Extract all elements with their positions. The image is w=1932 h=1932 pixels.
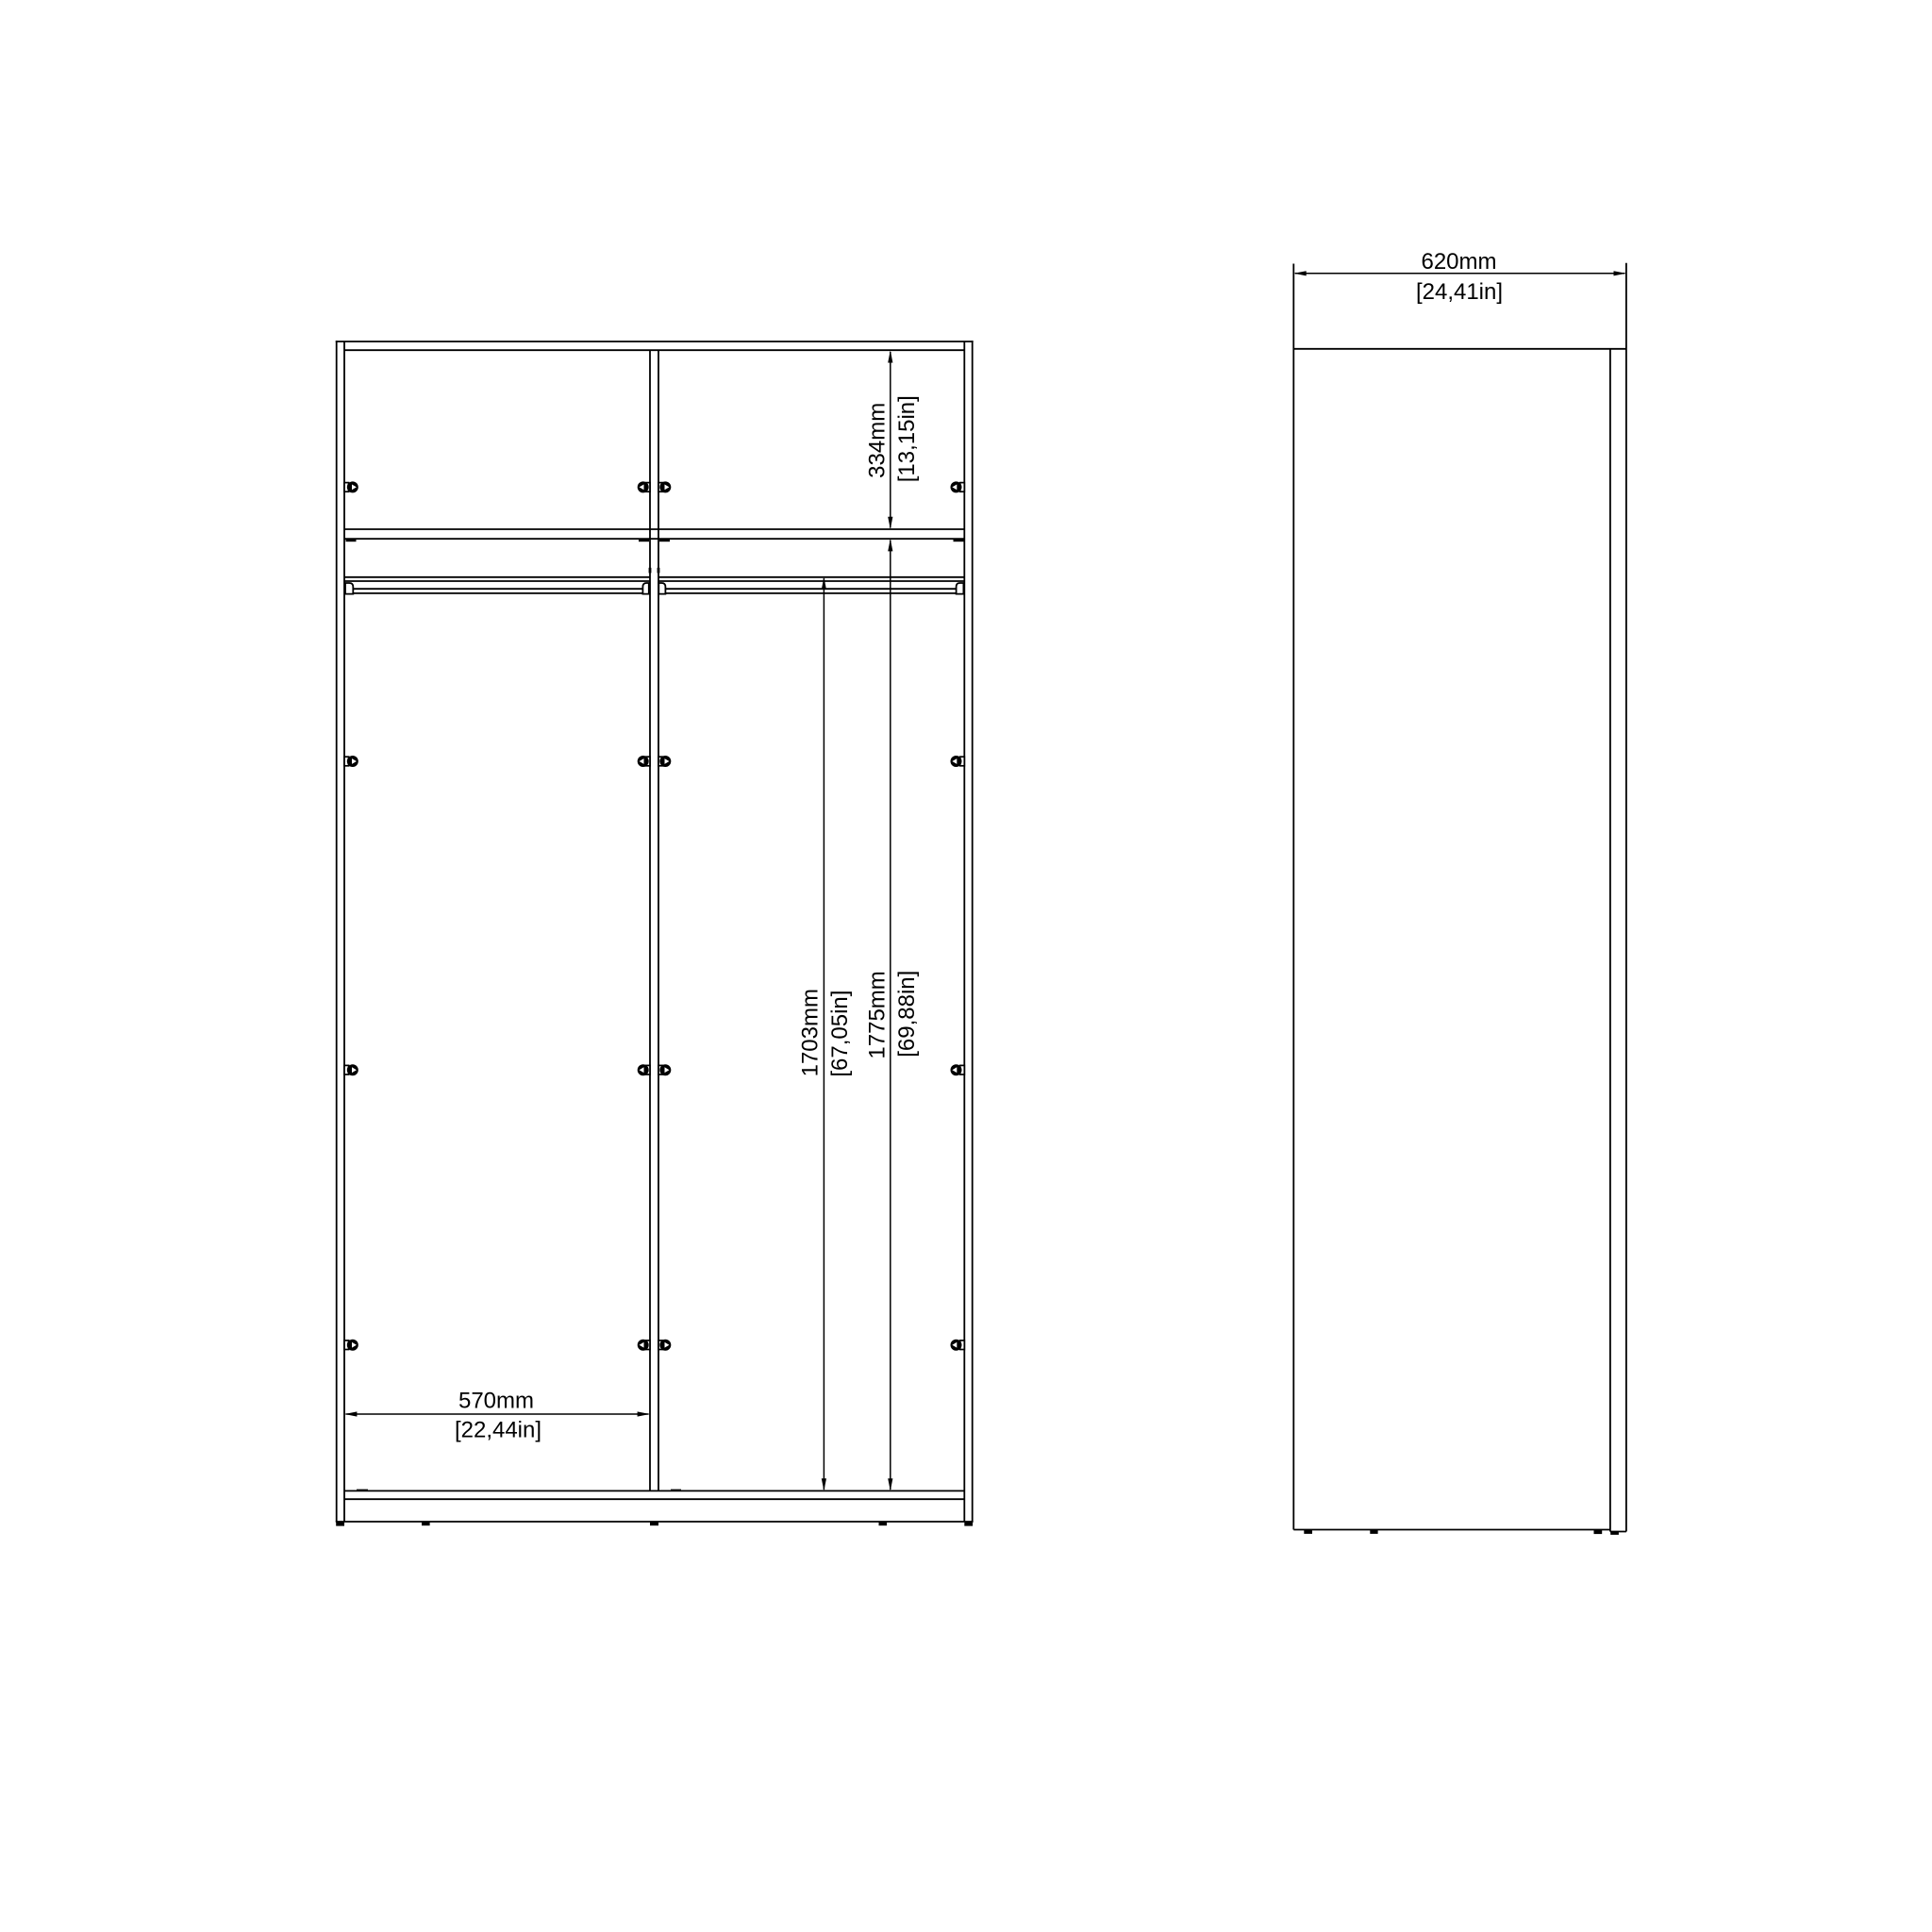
svg-text:[22,44in]: [22,44in] <box>455 1418 541 1443</box>
svg-text:620mm: 620mm <box>1421 249 1496 275</box>
svg-text:1703mm: 1703mm <box>798 989 824 1076</box>
svg-text:[13,15in]: [13,15in] <box>894 395 920 482</box>
svg-text:[67,05in]: [67,05in] <box>827 991 853 1077</box>
svg-text:1775mm: 1775mm <box>865 971 891 1058</box>
svg-text:570mm: 570mm <box>458 1389 534 1414</box>
svg-text:[24,41in]: [24,41in] <box>1416 279 1503 305</box>
svg-text:334mm: 334mm <box>865 403 891 478</box>
svg-text:[69,88in]: [69,88in] <box>894 971 920 1058</box>
